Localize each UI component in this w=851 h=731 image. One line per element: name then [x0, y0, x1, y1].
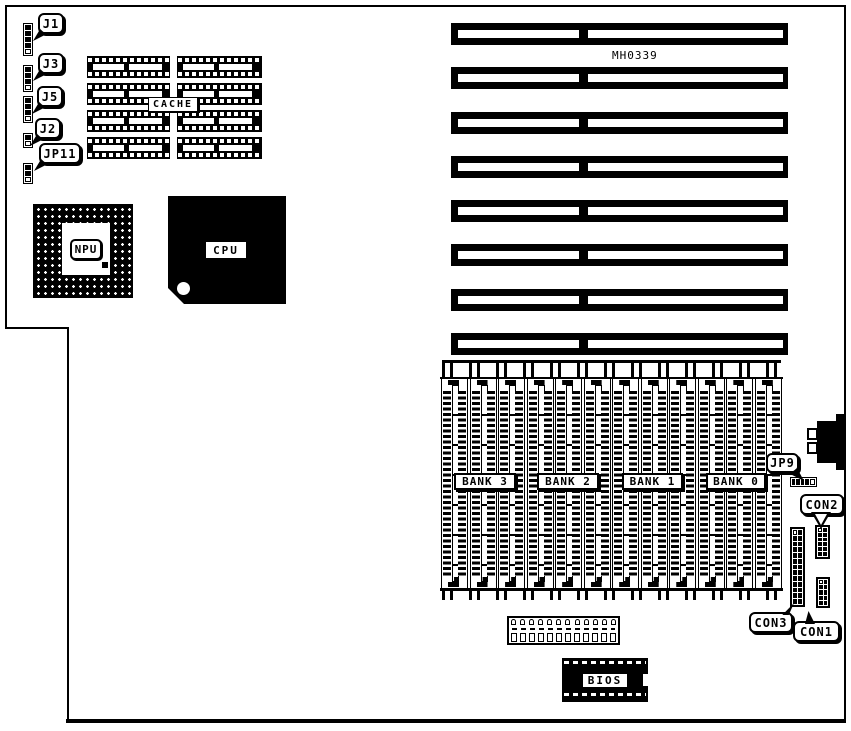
con1-callout: CON1: [793, 621, 840, 642]
jumper-pin: [25, 177, 31, 182]
bank3-label: BANK 3: [454, 473, 516, 490]
isa-slot: [451, 67, 788, 89]
power-pin: [511, 619, 516, 625]
bios-label: BIOS: [582, 673, 628, 688]
power-pin: [583, 633, 589, 642]
con3-callout: CON3: [749, 612, 793, 633]
con2-callout: CON2: [800, 494, 844, 515]
pin: [793, 588, 797, 593]
pin: [823, 552, 827, 556]
isa-slot: [451, 333, 788, 355]
pin: [818, 552, 822, 556]
simm-sockets-area: BANK 3 BANK 2 BANK 1 BANK 0: [440, 360, 783, 600]
bios-notch: [643, 674, 648, 686]
bios-chip: BIOS: [562, 658, 648, 702]
pin: [819, 596, 823, 600]
keyboard-connector-tab: [807, 428, 818, 440]
jumper-pin: [25, 73, 31, 78]
j2-label: J2: [40, 122, 56, 136]
pin: [798, 565, 802, 570]
pin: [793, 553, 797, 558]
pin: [824, 590, 828, 594]
pin: [798, 588, 802, 593]
pin: [824, 596, 828, 600]
jp11-label: JP11: [44, 147, 77, 161]
pin: [793, 542, 797, 547]
con2-pin-header: [815, 525, 830, 559]
pin: [793, 576, 797, 581]
jumper-pin: [25, 49, 31, 54]
jumper-pin: [25, 37, 31, 42]
jumper-pin: [25, 116, 31, 121]
callout-tail-icon: [33, 69, 46, 81]
con1-pin-header: [816, 577, 830, 608]
isa-slot: [451, 23, 788, 45]
bios-text: BIOS: [588, 674, 623, 687]
pin: [823, 528, 827, 532]
callout-tail-icon: [805, 611, 815, 624]
pin: [818, 542, 822, 546]
pin: [819, 590, 823, 594]
jumper-pin: [25, 104, 31, 109]
callout-tail-icon: [33, 29, 46, 41]
pin: [798, 547, 802, 552]
isa-slot: [451, 244, 788, 266]
power-square-row: [511, 633, 616, 642]
j5-label: J5: [42, 90, 58, 104]
pin: [798, 542, 802, 547]
pin: [798, 593, 802, 598]
cache-chip: [177, 110, 262, 132]
pin: [819, 580, 823, 584]
power-pin: [611, 619, 616, 625]
power-pin: [575, 619, 580, 625]
npu-socket: NPU: [33, 204, 133, 298]
pin: [793, 559, 797, 564]
simm-bottom-tabs: [442, 591, 781, 600]
pin: [824, 580, 828, 584]
cache-chip: [87, 137, 170, 159]
cpu-label: CPU: [206, 242, 246, 258]
power-dash-row: [512, 628, 615, 630]
cpu-pin1-dot: [177, 282, 190, 295]
pin: [793, 599, 797, 604]
simm-top-tabs: [442, 363, 781, 377]
keyboard-connector-outer: [836, 414, 846, 470]
power-connector: [507, 616, 620, 645]
isa-slot: [451, 200, 788, 222]
jumper-pin: [25, 98, 31, 103]
power-pin: [592, 633, 598, 642]
power-pin: [547, 633, 553, 642]
npu-pin1-dot: [102, 262, 108, 268]
jumper-pin: [25, 141, 31, 146]
jp9-label: JP9: [770, 456, 795, 470]
con2-label: CON2: [806, 498, 839, 512]
jumper-pin: [25, 135, 31, 140]
cache-label: CACHE: [148, 97, 198, 112]
pin: [819, 601, 823, 605]
bank0-text: BANK 0: [713, 475, 759, 488]
bank2-label: BANK 2: [537, 473, 599, 490]
npu-label: NPU: [70, 239, 103, 260]
jumper-pin: [25, 110, 31, 115]
motherboard-diagram: J1 J3 J5 J2 JP11 CACHE NPU CPU MH0339 BA…: [0, 0, 851, 731]
power-pin: [547, 619, 552, 625]
pin: [818, 528, 822, 532]
pin: [798, 536, 802, 541]
cpu-chip: CPU: [168, 196, 286, 304]
pin: [798, 553, 802, 558]
bank2-text: BANK 2: [545, 475, 591, 488]
callout-tail-icon: [32, 102, 45, 114]
power-pin: [538, 633, 544, 642]
pin: [793, 593, 797, 598]
pin: [824, 601, 828, 605]
power-pin: [601, 633, 607, 642]
keyboard-connector-inner: [817, 421, 836, 463]
pin: [798, 576, 802, 581]
jumper-pin: [25, 43, 31, 48]
pin: [793, 536, 797, 541]
pin: [818, 538, 822, 542]
pin: [818, 533, 822, 537]
pin: [793, 530, 797, 535]
pin: [793, 547, 797, 552]
j3-callout: J3: [38, 53, 64, 74]
pin: [793, 582, 797, 587]
con1-label: CON1: [800, 625, 833, 639]
isa-slot-column: [451, 23, 788, 355]
pin: [824, 585, 828, 589]
isa-slot: [451, 112, 788, 134]
jumper-pin: [25, 165, 31, 170]
board-part-number: MH0339: [612, 49, 658, 62]
jumper-pin: [25, 31, 31, 36]
power-pin: [565, 619, 570, 625]
power-pin: [529, 633, 535, 642]
pin: [793, 570, 797, 575]
j1-callout: J1: [38, 13, 64, 34]
con3-pin-header: [790, 527, 805, 607]
power-pin: [556, 633, 562, 642]
power-pin: [602, 619, 607, 625]
isa-slot: [451, 289, 788, 311]
jumper-block-j5: [23, 96, 33, 123]
jp9-jumper-block: [790, 477, 817, 487]
jumper-pin: [792, 479, 795, 485]
jumper-pin: [25, 85, 31, 90]
pin: [818, 547, 822, 551]
cache-chip: [177, 137, 262, 159]
pin: [823, 547, 827, 551]
jumper-pin: [25, 171, 31, 176]
jumper-pin: [810, 479, 815, 485]
cache-chip: [87, 110, 170, 132]
power-pin: [574, 633, 580, 642]
bank0-label: BANK 0: [706, 473, 766, 490]
power-pin: [511, 633, 517, 642]
jp9-callout: JP9: [766, 453, 799, 473]
power-pin-row: [511, 619, 616, 625]
bank3-text: BANK 3: [462, 475, 508, 488]
pin: [798, 582, 802, 587]
pin: [798, 570, 802, 575]
pin: [819, 585, 823, 589]
power-pin: [520, 619, 525, 625]
jumper-block-j3: [23, 65, 33, 92]
pin: [823, 542, 827, 546]
con3-label: CON3: [755, 616, 788, 630]
power-pin: [529, 619, 534, 625]
cache-chip: [177, 56, 262, 78]
callout-tail-icon: [34, 159, 47, 171]
j5-callout: J5: [37, 86, 63, 107]
pin: [798, 530, 802, 535]
cache-chip: [87, 56, 170, 78]
power-pin: [593, 619, 598, 625]
bank1-label: BANK 1: [622, 473, 683, 490]
jumper-pin: [805, 479, 808, 485]
cache-text: CACHE: [153, 99, 193, 110]
pin: [798, 599, 802, 604]
j1-label: J1: [43, 17, 59, 31]
j3-label: J3: [43, 57, 59, 71]
jp11-callout: JP11: [39, 143, 81, 164]
jumper-pin: [25, 79, 31, 84]
jumper-block-j1: [23, 23, 33, 56]
jumper-pin: [25, 25, 31, 30]
power-pin: [584, 619, 589, 625]
power-pin: [565, 633, 571, 642]
jumper-block-j2: [23, 133, 33, 148]
isa-slot: [451, 156, 788, 178]
jumper-pin: [796, 479, 799, 485]
jumper-block-jp11: [23, 163, 33, 184]
power-pin: [520, 633, 526, 642]
pin: [793, 565, 797, 570]
pin: [823, 533, 827, 537]
power-pin: [556, 619, 561, 625]
j2-callout: J2: [35, 118, 61, 139]
pin: [823, 538, 827, 542]
jumper-pin: [25, 67, 31, 72]
power-pin: [610, 633, 616, 642]
bank1-text: BANK 1: [630, 475, 676, 488]
pin: [798, 559, 802, 564]
keyboard-connector-tab: [807, 442, 818, 454]
power-pin: [538, 619, 543, 625]
